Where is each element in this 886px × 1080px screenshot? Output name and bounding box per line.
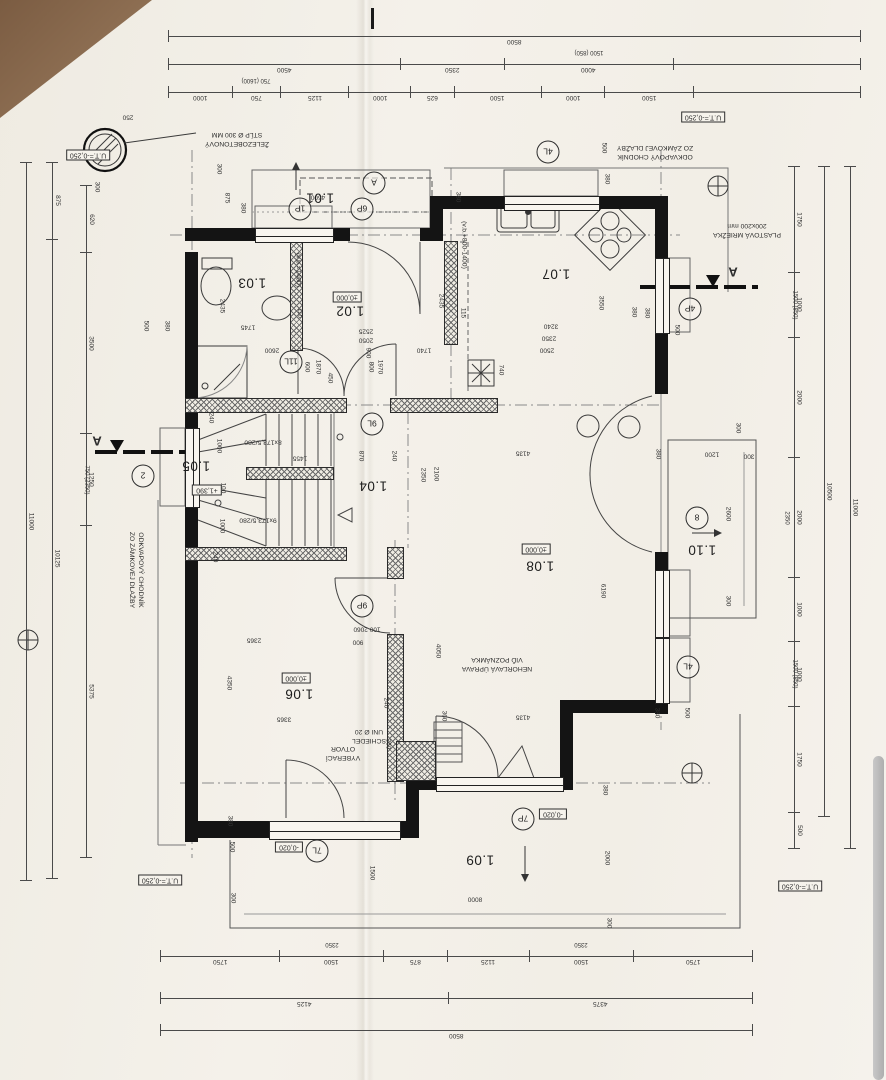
note-line: VIĎ POZNÁMKA bbox=[471, 656, 522, 663]
stair-flight-down-label: 9x173,5/280 bbox=[239, 515, 276, 524]
dim-segment: 1500 bbox=[454, 86, 541, 98]
dim-segment: 20002350 bbox=[788, 457, 800, 577]
dim-label: 2600 bbox=[265, 347, 279, 354]
dim-label: 6190 bbox=[600, 584, 607, 598]
dim-label: 1740 bbox=[417, 347, 431, 354]
dim-label: 875 bbox=[224, 193, 231, 204]
dim-segment: 500 bbox=[788, 812, 800, 848]
wall bbox=[430, 196, 504, 209]
note-line: UNI Ø 20 bbox=[355, 728, 383, 735]
dim-label: 600 bbox=[304, 362, 311, 373]
dim-segment: 1750 bbox=[160, 950, 279, 962]
dim-label: 4135 bbox=[516, 714, 530, 721]
dim-label: 2000 bbox=[604, 851, 611, 865]
dim-chain-right-total: 11000 bbox=[844, 166, 856, 849]
note-parapet-bath: (v.b.=1400) bbox=[293, 253, 302, 287]
note-fireproof: NEHORĽAVÁ ÚPRAVAVIĎ POZNÁMKA bbox=[462, 654, 532, 672]
dim-segment: 625 bbox=[410, 86, 453, 98]
wall bbox=[420, 228, 430, 241]
dim-segment: 1750 bbox=[788, 706, 800, 812]
dim-chain-bottom-total: 8500 bbox=[160, 1024, 753, 1036]
note-parapet-kitchen: (v.b.+800-1400) bbox=[459, 221, 468, 269]
partition-hatched bbox=[387, 547, 404, 579]
dim-label: 800 bbox=[368, 362, 375, 373]
note-line: VYBERACÍ bbox=[326, 754, 360, 761]
dim-label: 900 bbox=[365, 348, 372, 359]
room-label-110: 1.10 bbox=[688, 543, 716, 558]
level-stair-landing: +1,390 bbox=[192, 485, 222, 496]
dim-label: 2435 bbox=[219, 299, 226, 313]
dim-chain-top-total: 8500 bbox=[168, 30, 861, 42]
dim-label: 1200 bbox=[705, 451, 719, 458]
dim-chain-bottom-major: 41254375 bbox=[160, 992, 753, 1004]
dim-segment: 4125 bbox=[160, 992, 448, 1004]
vent-fan bbox=[468, 360, 494, 386]
dim-segment bbox=[673, 58, 860, 70]
dim-label: 300 bbox=[216, 164, 223, 175]
note-line: 8x173,5/280 bbox=[244, 438, 281, 445]
dim-label: 500 bbox=[684, 708, 691, 719]
level-terrain-tr: U.T.=-0,250 bbox=[681, 112, 725, 123]
terrace-east-outline bbox=[668, 440, 756, 618]
note-line: 9x173,5/280 bbox=[239, 516, 276, 523]
note-line: ZO ZÁMKOVEJ DLAŽBY bbox=[128, 532, 135, 608]
opening-mark-7p: 7P bbox=[512, 808, 535, 831]
room-label-102: 1.02 bbox=[336, 304, 364, 319]
note-line: STĹP Ø 300 MM bbox=[212, 131, 263, 138]
note-gutter-walk-left: ODKVAPOVÝ CHODNÍKZO ZÁMKOVEJ DLAŽBY bbox=[126, 532, 144, 608]
note-line: 200x200 mm bbox=[727, 222, 766, 229]
dim-segment: 10001500 (850) bbox=[788, 641, 800, 705]
stools bbox=[577, 415, 640, 438]
level-floor-106: ±0,000 bbox=[281, 673, 310, 684]
gutter-walk-lines bbox=[158, 168, 728, 845]
dim-label: 2525 bbox=[359, 328, 373, 335]
opening-mark-1p: 1P bbox=[289, 198, 312, 221]
dim-segment: 1500 bbox=[604, 86, 693, 98]
note-line: OTVOR bbox=[331, 745, 355, 752]
dim-label: 1455 bbox=[293, 455, 307, 462]
opening-mark-6p: 6P bbox=[351, 198, 374, 221]
dim-label: 380 bbox=[240, 203, 247, 214]
shower bbox=[193, 346, 247, 398]
dim-segment: 8500 bbox=[168, 30, 860, 42]
dim-label: 8000 bbox=[468, 896, 482, 903]
dim-chain-bottom-detail: 1750150023508751125150023501750 bbox=[160, 950, 753, 962]
dim-segment: 8500 bbox=[160, 1024, 752, 1036]
dim-segment: 2000 bbox=[788, 337, 800, 457]
dim-label: 2350 bbox=[420, 468, 427, 482]
dim-segment: 1000 bbox=[168, 86, 232, 98]
room-label-109: 1.09 bbox=[466, 853, 494, 868]
dim-segment: 620 bbox=[80, 185, 92, 252]
opening-mark-9p: 9P bbox=[351, 595, 374, 618]
window-4l-right bbox=[655, 638, 670, 704]
opening-mark-11l: 11L bbox=[280, 351, 303, 374]
dim-label: 2100 bbox=[433, 467, 440, 481]
dim-label: 380 bbox=[655, 449, 662, 460]
window-4l-top bbox=[504, 196, 600, 211]
dim-label: 300 bbox=[744, 453, 755, 460]
dim-label: 240 bbox=[208, 413, 215, 424]
dim-chain-top-major: 4500235040001500 (850) bbox=[168, 58, 861, 70]
window-4p bbox=[655, 258, 670, 334]
wall bbox=[560, 700, 668, 713]
dim-label: 380 bbox=[227, 816, 234, 827]
opening-mark-4l-right: 4L bbox=[677, 656, 700, 679]
dim-label: 3365 bbox=[277, 716, 291, 723]
dim-segment: 4375 bbox=[448, 992, 752, 1004]
dim-label: 900 bbox=[353, 639, 364, 646]
chimney-block-hatched bbox=[396, 741, 436, 781]
exterior-steps bbox=[434, 722, 462, 762]
dim-segment: 1125 bbox=[447, 950, 529, 962]
dim-label: 300 bbox=[735, 423, 742, 434]
dim-label: 380 bbox=[602, 785, 609, 796]
dim-label: 500 bbox=[229, 842, 236, 853]
wall bbox=[655, 330, 668, 394]
dim-label: 4050 bbox=[435, 644, 442, 658]
dim-label: 380 bbox=[644, 308, 651, 319]
dim-label: 250 bbox=[123, 114, 134, 121]
note-line: ŽELEZOBETONOVÝ bbox=[205, 140, 269, 147]
dim-label: 2435 bbox=[438, 294, 445, 308]
note-soot-door: VYBERACÍOTVOR bbox=[326, 743, 360, 761]
partition-hatched bbox=[444, 241, 458, 345]
note-line: PLASTOVÁ MRIEŽKA bbox=[713, 231, 781, 238]
dim-label: 300 bbox=[230, 893, 237, 904]
dim-segment: 10001500 (850) bbox=[788, 272, 800, 336]
dim-label: 300 bbox=[94, 182, 101, 193]
dim-segment: 875 bbox=[383, 950, 447, 962]
dim-segment bbox=[693, 86, 860, 98]
dim-segment: 5375 bbox=[80, 525, 92, 857]
room-label-106: 1.06 bbox=[285, 687, 313, 702]
partition-hatched bbox=[185, 547, 347, 561]
dim-segment: 1000 bbox=[541, 86, 605, 98]
dim-label: 240 bbox=[212, 552, 219, 563]
dim-label: 2600 bbox=[725, 507, 732, 521]
level-terrain-bl: U.T.=-0,250 bbox=[138, 875, 182, 886]
dim-segment: 3500 bbox=[80, 252, 92, 432]
dim-label: 360 bbox=[441, 711, 448, 722]
partition-hatched bbox=[185, 398, 347, 413]
dim-label: 300 bbox=[606, 918, 613, 929]
dim-label: 380 bbox=[631, 307, 638, 318]
dim-label: 500 bbox=[601, 143, 608, 154]
wall bbox=[332, 228, 350, 241]
door-swings bbox=[286, 242, 661, 818]
note-line: NEHORĽAVÁ ÚPRAVA bbox=[462, 665, 532, 672]
dim-label: 2350 bbox=[542, 335, 556, 342]
window-sills bbox=[160, 170, 690, 702]
toilet bbox=[201, 258, 232, 305]
dim-segment: 1000 bbox=[788, 577, 800, 641]
dim-label: 2365 bbox=[247, 637, 261, 644]
dim-label: 380 bbox=[654, 708, 661, 719]
dim-label: 3550 bbox=[598, 296, 605, 310]
dim-segment: 2350 bbox=[400, 58, 504, 70]
dim-label: 870 bbox=[358, 451, 365, 462]
partition-hatched bbox=[246, 467, 334, 480]
partition-hatched bbox=[390, 398, 498, 413]
opening-mark-4l-top: 4L bbox=[537, 141, 560, 164]
level-terrace-7l: -0,020 bbox=[275, 842, 303, 853]
dim-segment: 750750 (1600) bbox=[232, 86, 280, 98]
wall bbox=[655, 552, 668, 572]
opening-mark-7l: 7L bbox=[306, 840, 329, 863]
dim-segment: 15002350 bbox=[279, 950, 383, 962]
note-line: ODKVAPOVÝ CHODNÍK bbox=[137, 532, 144, 607]
level-floor-102: ±0,000 bbox=[332, 292, 361, 303]
dim-label: 1870 bbox=[315, 360, 322, 374]
dim-label: 115 bbox=[297, 308, 304, 318]
dim-label: 300 bbox=[725, 596, 732, 607]
dim-segment: 11000 bbox=[20, 162, 32, 880]
dim-label: 1000 bbox=[216, 439, 223, 453]
dim-segment: 1125 bbox=[280, 86, 348, 98]
room-label-104: 1.04 bbox=[359, 479, 387, 494]
note-chimney-type: SCHIEDELUNI Ø 20 bbox=[352, 726, 386, 744]
dim-label: 740 bbox=[498, 365, 505, 376]
dim-label: 380 bbox=[164, 321, 171, 332]
dim-segment: 10500 bbox=[818, 166, 830, 816]
dim-segment: 875 bbox=[46, 162, 58, 239]
window-1p bbox=[255, 228, 334, 243]
dim-segment: 40001500 (850) bbox=[504, 58, 673, 70]
dim-segment: 1750 bbox=[633, 950, 752, 962]
wall bbox=[185, 228, 255, 241]
dim-segment: 11000 bbox=[844, 166, 856, 848]
dim-segment: 4500 bbox=[168, 58, 400, 70]
dim-chain-right-detail: 175010001500 (850)2000200023501000100015… bbox=[788, 166, 800, 849]
opening-mark-2: 2 bbox=[132, 465, 155, 488]
dim-label: 4135 bbox=[516, 450, 530, 457]
dim-label: 3240 bbox=[544, 323, 558, 330]
dim-label: 115 bbox=[460, 308, 467, 318]
dim-chain-left-major: 87510125 bbox=[46, 162, 58, 879]
opening-mark-9l: 9L bbox=[361, 413, 384, 436]
dim-label: 380 bbox=[604, 174, 611, 185]
dim-label: 380 bbox=[455, 192, 462, 203]
detail-mark-a: A bbox=[363, 172, 386, 195]
opening-mark-8: 8 bbox=[686, 507, 709, 530]
dim-segment: 15002350 bbox=[529, 950, 633, 962]
note-line: (v.b.+800-1400) bbox=[460, 221, 467, 269]
terrace-door-7p bbox=[436, 777, 564, 792]
dim-label: 2050 bbox=[359, 337, 373, 344]
dim-label: 500 bbox=[674, 325, 681, 336]
dim-segment: 10125 bbox=[46, 239, 58, 878]
dim-chain-top-detail: 1000750750 (1600)11251000625150010001500 bbox=[168, 86, 861, 98]
note-gutter-walk-top: ODKVAPOVÝ CHODNÍKZO ZÁMKOVEJ DLAŽBY bbox=[617, 142, 693, 160]
dim-chain-left-total: 11000 bbox=[20, 162, 32, 881]
note-plastic-grille: PLASTOVÁ MRIEŽKA200x200 mm bbox=[713, 220, 781, 238]
dim-label: 1970 bbox=[377, 360, 384, 374]
dim-label: 1000 bbox=[219, 519, 226, 533]
dim-label: 500 bbox=[143, 321, 150, 332]
level-floor-108: ±0,000 bbox=[521, 544, 550, 555]
note-line: ZO ZÁMKOVEJ DLAŽBY bbox=[617, 144, 693, 151]
dim-chain-left-detail: 62035001250750 (2350)5375 bbox=[80, 185, 92, 858]
note-concrete-column: ŽELEZOBETONOVÝSTĹP Ø 300 MM bbox=[205, 129, 269, 147]
room-label-108: 1.08 bbox=[526, 559, 554, 574]
dim-label: 100 2060 bbox=[353, 626, 380, 633]
opening-mark-4p: 4P bbox=[679, 298, 702, 321]
entrance-porch bbox=[252, 170, 432, 228]
scanned-floor-plan-sheet: 8500 4500235040001500 (850) 1000750750 (… bbox=[0, 0, 886, 1080]
note-line: (v.b.=1400) bbox=[294, 253, 301, 287]
wall bbox=[655, 196, 668, 260]
room-label-103: 1.03 bbox=[238, 276, 266, 291]
dim-label: 240 bbox=[391, 451, 398, 462]
dim-segment: 1250750 (2350) bbox=[80, 433, 92, 525]
dim-chain-right-major: 10500 bbox=[818, 166, 830, 817]
dim-label: 450 bbox=[327, 373, 334, 384]
level-terrain-br: U.T.=-0,250 bbox=[778, 881, 822, 892]
room-label-105: 1.05 bbox=[182, 459, 210, 474]
note-line: ODKVAPOVÝ CHODNÍK bbox=[617, 153, 692, 160]
wall bbox=[406, 777, 419, 823]
window-right bbox=[655, 570, 670, 638]
axis-lines bbox=[170, 150, 710, 858]
level-terrain-tl: U.T.=-0,250 bbox=[66, 150, 110, 161]
note-line: SCHIEDEL bbox=[352, 737, 386, 744]
dim-segment: 1750 bbox=[788, 166, 800, 272]
window-door-7l bbox=[269, 821, 401, 840]
washbasin bbox=[262, 296, 292, 320]
dim-segment: 1000 bbox=[348, 86, 410, 98]
room-label-107: 1.07 bbox=[542, 267, 570, 282]
dim-label: 1745 bbox=[241, 324, 255, 331]
section-letter-a-right: A bbox=[728, 265, 737, 280]
dim-label: 4350 bbox=[226, 676, 233, 690]
section-letter-a-left: A bbox=[92, 434, 101, 449]
dim-label: 2500 bbox=[540, 347, 554, 354]
level-terrace-7p: -0,020 bbox=[539, 809, 567, 820]
dim-label: 240 bbox=[383, 698, 390, 709]
dim-label: 1500 bbox=[369, 866, 376, 880]
stair-flight-up-label: 8x173,5/280 bbox=[244, 437, 281, 446]
